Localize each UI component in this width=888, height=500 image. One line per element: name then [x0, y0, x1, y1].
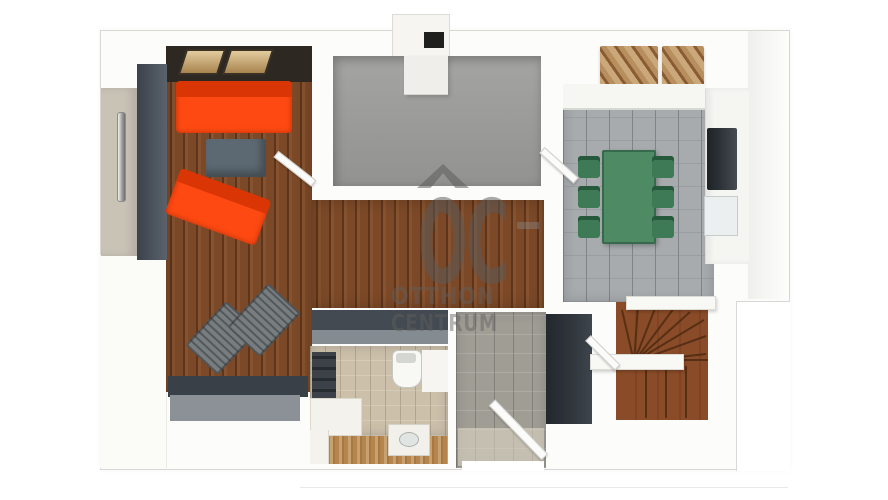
- dining-chair: [652, 216, 674, 238]
- wood-cabinet: [600, 46, 658, 86]
- washing-machine: [312, 352, 336, 400]
- dark-rug: [168, 376, 308, 397]
- living-room-wardrobe: [137, 64, 167, 260]
- coffee-table: [206, 139, 266, 177]
- bathroom-counter-arm: [310, 430, 329, 464]
- sink-basin: [399, 432, 419, 447]
- gray-room-wall-protrusion: [404, 56, 448, 95]
- toilet-niche-wall: [422, 350, 448, 392]
- corridor-floor: [312, 200, 544, 308]
- orange-sofa: [176, 81, 292, 133]
- left-wall-lower-block: [100, 255, 167, 468]
- dining-chair: [652, 156, 674, 178]
- hall-wardrobe: [546, 314, 592, 424]
- toilet: [392, 350, 422, 388]
- skylight-window-icon: [178, 49, 226, 75]
- dining-chair: [578, 216, 600, 238]
- gray-sideboard-mat: [170, 395, 300, 421]
- bottom-terrace-line: [300, 487, 788, 488]
- door-handle-icon: [117, 112, 126, 202]
- kitchen-sink-unit: [704, 196, 738, 236]
- vanity-sink: [388, 424, 430, 456]
- toilet-lid: [396, 353, 416, 363]
- entry-wall-opening: [462, 461, 544, 471]
- floor-plan-render: OC OTTHON CENTRUM: [0, 0, 888, 500]
- sofa-backrest: [176, 81, 292, 97]
- chimney-flue: [424, 32, 444, 48]
- right-exterior-wall-shading: [748, 31, 788, 299]
- skylight-window-icon: [222, 49, 274, 75]
- wood-cabinet: [662, 46, 704, 86]
- dining-chair: [578, 186, 600, 208]
- dining-chair: [578, 156, 600, 178]
- stair-railing: [626, 296, 716, 310]
- dining-chair: [652, 186, 674, 208]
- kitchen-counter-top: [563, 84, 705, 110]
- kitchen-appliance: [707, 128, 737, 190]
- building-notch-bottom-right: [736, 301, 790, 471]
- bathroom-dark-wall-band: [312, 310, 448, 330]
- bathroom-gray-wall-band: [312, 330, 448, 344]
- dining-table: [602, 150, 656, 244]
